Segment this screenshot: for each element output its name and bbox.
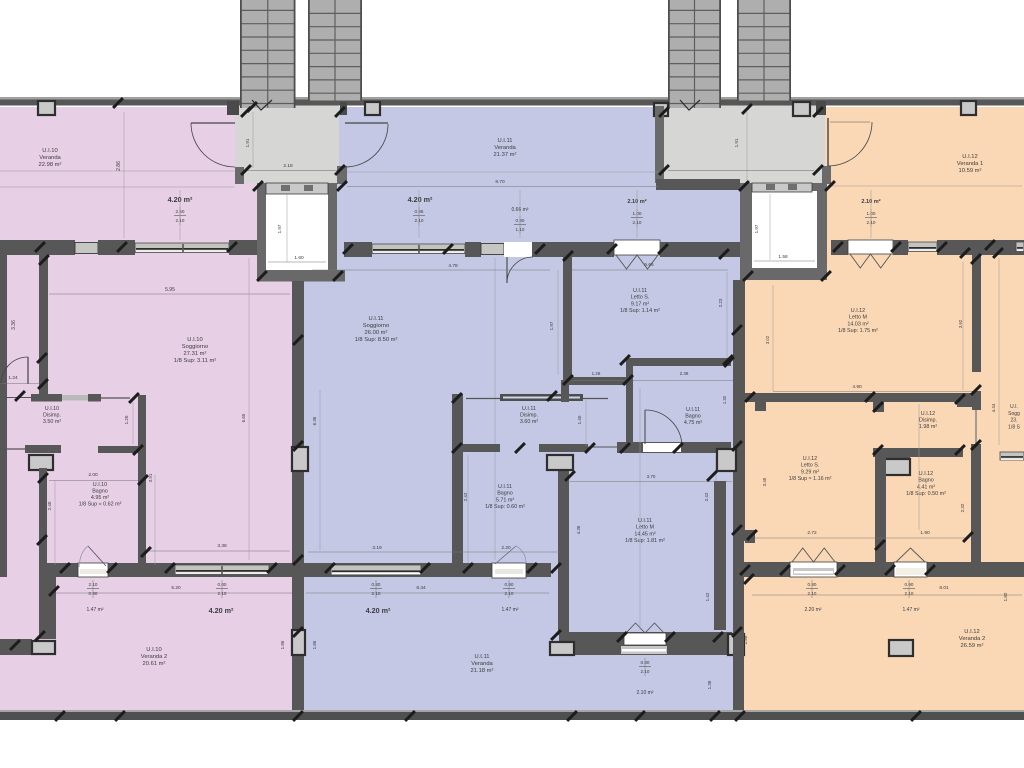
svg-text:Bagno: Bagno — [497, 491, 513, 497]
svg-text:1/8 Sup: 8.50 m²: 1/8 Sup: 8.50 m² — [355, 337, 398, 343]
svg-text:8.70: 8.70 — [495, 179, 505, 185]
svg-text:4.75 m²: 4.75 m² — [684, 420, 702, 426]
svg-text:1.98 m²: 1.98 m² — [919, 424, 937, 430]
svg-text:U.I.11: U.I.11 — [686, 407, 700, 413]
svg-text:5.71 m²: 5.71 m² — [496, 497, 514, 503]
svg-text:Sogg: Sogg — [1008, 411, 1020, 417]
svg-text:1.40: 1.40 — [577, 415, 582, 424]
svg-text:2.20 m²: 2.20 m² — [805, 607, 822, 613]
svg-text:1.58: 1.58 — [778, 254, 788, 260]
svg-text:2.86: 2.86 — [116, 161, 122, 171]
svg-text:1/8 Sup: 0.60 m²: 1/8 Sup: 0.60 m² — [485, 504, 525, 510]
svg-text:2.32: 2.32 — [960, 503, 965, 512]
svg-text:1.97: 1.97 — [277, 224, 282, 233]
svg-text:22.98 m²: 22.98 m² — [39, 162, 62, 168]
svg-text:4.20 m²: 4.20 m² — [168, 195, 193, 204]
svg-text:3.45: 3.45 — [762, 477, 767, 486]
svg-text:3.70: 3.70 — [647, 474, 656, 479]
svg-text:3.19: 3.19 — [372, 545, 382, 551]
svg-text:4.44: 4.44 — [991, 403, 996, 412]
svg-text:Veranda: Veranda — [39, 155, 61, 161]
svg-text:1.47 m²: 1.47 m² — [502, 607, 519, 613]
svg-text:U.I.11: U.I.11 — [474, 654, 489, 660]
svg-text:8.34: 8.34 — [416, 585, 426, 591]
svg-text:1.47 m²: 1.47 m² — [87, 607, 104, 613]
svg-text:Disimp.: Disimp. — [919, 418, 937, 424]
svg-text:2.00: 2.00 — [88, 472, 98, 478]
svg-text:23.: 23. — [1011, 418, 1018, 424]
svg-text:1.38: 1.38 — [707, 680, 712, 689]
svg-text:3.91: 3.91 — [148, 473, 153, 482]
svg-text:U.I.10: U.I.10 — [93, 482, 107, 488]
svg-text:26.59 m²: 26.59 m² — [961, 643, 984, 649]
svg-text:1/8 S: 1/8 S — [1008, 424, 1020, 430]
svg-text:6.65: 6.65 — [241, 413, 246, 422]
svg-text:2.42: 2.42 — [704, 492, 709, 501]
svg-text:1.42: 1.42 — [705, 592, 710, 601]
svg-text:1.60: 1.60 — [294, 255, 304, 261]
svg-text:1/8 Sup ≈ 1.16 m²: 1/8 Sup ≈ 1.16 m² — [789, 476, 832, 482]
svg-text:1.47 m²: 1.47 m² — [903, 607, 920, 613]
svg-text:14.03 m²: 14.03 m² — [847, 321, 868, 327]
svg-text:Bagno: Bagno — [685, 414, 701, 420]
svg-text:2.10 m²: 2.10 m² — [637, 690, 654, 696]
svg-text:Veranda 1: Veranda 1 — [957, 161, 983, 167]
svg-text:3.38: 3.38 — [217, 543, 227, 549]
svg-text:Bagno: Bagno — [92, 489, 108, 495]
svg-text:2.88: 2.88 — [743, 635, 748, 644]
svg-text:9.29 m²: 9.29 m² — [801, 469, 819, 475]
svg-text:20.61 m²: 20.61 m² — [143, 661, 166, 667]
svg-text:1/8 Sup: 1.14 m²: 1/8 Sup: 1.14 m² — [620, 308, 660, 314]
svg-text:3.02: 3.02 — [765, 335, 770, 344]
svg-text:U.I.12: U.I.12 — [803, 456, 817, 462]
svg-text:U.I.12: U.I.12 — [921, 411, 935, 417]
svg-text:1.97: 1.97 — [549, 321, 554, 330]
svg-text:Letto M: Letto M — [636, 525, 654, 531]
svg-text:3.36: 3.36 — [11, 320, 17, 330]
svg-text:1.82: 1.82 — [1003, 592, 1008, 601]
svg-text:Disimp.: Disimp. — [520, 413, 538, 419]
svg-text:9.17 m²: 9.17 m² — [631, 301, 649, 307]
svg-text:1.91: 1.91 — [245, 138, 250, 147]
svg-text:26.00 m²: 26.00 m² — [365, 330, 388, 336]
svg-text:Letto M: Letto M — [849, 315, 867, 321]
svg-text:U.I.12: U.I.12 — [964, 629, 979, 635]
svg-text:U.I.10: U.I.10 — [146, 647, 161, 653]
svg-text:Letto S.: Letto S. — [631, 295, 650, 301]
svg-text:10.59 m²: 10.59 m² — [959, 168, 982, 174]
svg-text:4.41 m²: 4.41 m² — [917, 484, 935, 490]
svg-text:U.I.12: U.I.12 — [851, 308, 865, 314]
svg-text:4.20 m²: 4.20 m² — [408, 195, 433, 204]
svg-text:1/8 Sup: 1.75 m²: 1/8 Sup: 1.75 m² — [838, 328, 878, 334]
svg-text:1/8 Sup: 0.50 m²: 1/8 Sup: 0.50 m² — [906, 491, 946, 497]
svg-text:Veranda 2: Veranda 2 — [959, 636, 985, 642]
svg-text:U.I.11: U.I.11 — [522, 406, 536, 412]
svg-text:Disimp.: Disimp. — [43, 413, 61, 419]
svg-text:21.18 m²: 21.18 m² — [471, 668, 494, 674]
svg-text:Bagno: Bagno — [918, 478, 934, 484]
svg-text:U.I.12: U.I.12 — [962, 154, 977, 160]
svg-text:2.38: 2.38 — [680, 371, 689, 376]
svg-text:1.30: 1.30 — [722, 395, 727, 404]
svg-text:1.91: 1.91 — [734, 138, 739, 147]
svg-text:21.37 m²: 21.37 m² — [494, 152, 517, 158]
svg-text:1.90: 1.90 — [920, 530, 930, 536]
svg-text:Veranda 2: Veranda 2 — [141, 654, 167, 660]
svg-text:2.42: 2.42 — [463, 492, 468, 501]
svg-text:U.I.10: U.I.10 — [42, 148, 57, 154]
svg-text:U.I.11: U.I.11 — [633, 288, 647, 294]
svg-text:2.72: 2.72 — [807, 530, 817, 536]
svg-text:1.28: 1.28 — [592, 371, 601, 376]
svg-text:1.97: 1.97 — [754, 224, 759, 233]
svg-text:1.20: 1.20 — [124, 415, 129, 424]
svg-text:Soggiorno: Soggiorno — [182, 344, 208, 350]
svg-text:6.36: 6.36 — [312, 416, 317, 425]
svg-text:5.20: 5.20 — [171, 585, 181, 591]
svg-text:4.36: 4.36 — [576, 525, 581, 534]
svg-text:Veranda: Veranda — [471, 661, 493, 667]
svg-text:1/8 Sup ≈ 0.62 m²: 1/8 Sup ≈ 0.62 m² — [79, 502, 122, 508]
svg-text:1/8 Sup: 3.11 m²: 1/8 Sup: 3.11 m² — [174, 358, 216, 364]
svg-text:U.I.11: U.I.11 — [368, 316, 383, 322]
svg-text:3.92: 3.92 — [958, 319, 963, 328]
svg-text:14.45 m²: 14.45 m² — [634, 531, 655, 537]
svg-text:2.40: 2.40 — [47, 501, 52, 510]
svg-text:Veranda: Veranda — [494, 145, 516, 151]
svg-text:8.01: 8.01 — [939, 585, 949, 591]
svg-text:5.95: 5.95 — [165, 287, 175, 293]
svg-text:4.78: 4.78 — [448, 263, 458, 269]
svg-text:U.I.11: U.I.11 — [498, 484, 512, 490]
svg-text:3.60 m²: 3.60 m² — [520, 419, 538, 425]
svg-text:4.20 m²: 4.20 m² — [209, 606, 234, 615]
svg-text:2.18: 2.18 — [283, 163, 293, 169]
svg-text:2.20: 2.20 — [501, 545, 511, 551]
svg-text:5.66: 5.66 — [644, 262, 654, 268]
svg-text:4.90: 4.90 — [852, 384, 862, 390]
svg-text:27.31 m²: 27.31 m² — [184, 351, 207, 357]
svg-text:2.23: 2.23 — [718, 298, 723, 307]
svg-text:3.50 m²: 3.50 m² — [43, 419, 61, 425]
svg-text:1.86: 1.86 — [280, 640, 285, 649]
svg-text:1.86: 1.86 — [312, 640, 317, 649]
svg-text:Soggiorno: Soggiorno — [363, 323, 389, 329]
svg-text:U.I.12: U.I.12 — [919, 471, 933, 477]
svg-text:4.20 m²: 4.20 m² — [366, 606, 391, 615]
svg-text:4.95 m²: 4.95 m² — [91, 495, 109, 501]
svg-text:U.I.11: U.I.11 — [497, 138, 512, 144]
svg-text:Letto S.: Letto S. — [801, 463, 820, 469]
svg-text:1.24: 1.24 — [8, 375, 18, 381]
svg-text:1/8 Sup: 1.81 m²: 1/8 Sup: 1.81 m² — [625, 538, 665, 544]
svg-text:U.I.10: U.I.10 — [187, 337, 202, 343]
svg-text:U.I.: U.I. — [1010, 404, 1018, 410]
svg-text:U.I.10: U.I.10 — [45, 406, 59, 412]
